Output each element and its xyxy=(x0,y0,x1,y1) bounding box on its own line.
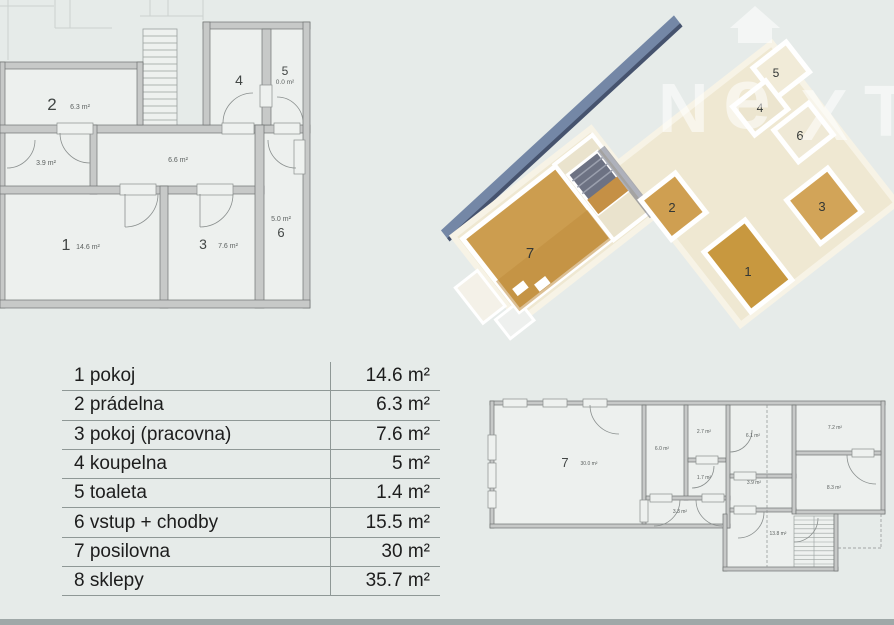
room-area: 7.6 m² xyxy=(328,424,440,446)
room2-area: 6.3 m² xyxy=(70,104,91,111)
watermark-letter-e: e xyxy=(723,51,771,147)
listing-image: 2 6.3 m² 4 5 0.0 m² 3.9 m² 6.6 m² 1 14.6… xyxy=(0,0,894,625)
table-row: 8 sklepy 35.7 m² xyxy=(62,567,440,596)
room-name: 4 koupelna xyxy=(62,453,328,475)
watermark-letter-t: T xyxy=(864,72,894,152)
bottom-edge-bar xyxy=(0,619,894,625)
room1-area: 14.6 m² xyxy=(76,244,100,251)
render3d-room5: 5 xyxy=(773,66,780,80)
room7-area: 30.0 m² xyxy=(581,461,598,467)
room-name: 2 prádelna xyxy=(62,394,328,416)
floorplan-lower: 7 30.0 m² 6.0 m² 2.7 m² 1.7 m² 6.1 m² 3.… xyxy=(484,396,894,578)
room-area: 6.3 m² xyxy=(328,394,440,416)
room-name: 6 vstup + chodby xyxy=(62,512,328,534)
render3d-room3: 3 xyxy=(818,199,825,214)
room6-area: 5.0 m² xyxy=(271,216,292,223)
cellar-area-72: 7.2 m² xyxy=(828,425,843,431)
room-area: 15.5 m² xyxy=(328,512,440,534)
room3-area: 7.6 m² xyxy=(218,243,239,250)
room-area: 35.7 m² xyxy=(328,570,440,592)
room-name: 7 posilovna xyxy=(62,541,328,563)
watermark-letter-n: N xyxy=(658,69,709,147)
floorplan-upper: 2 6.3 m² 4 5 0.0 m² 3.9 m² 6.6 m² 1 14.6… xyxy=(0,0,340,315)
cellar-area-17: 1.7 m² xyxy=(697,475,712,481)
table-row: 4 koupelna 5 m² xyxy=(62,450,440,479)
render3d-room2: 2 xyxy=(668,200,675,215)
room4-number: 4 xyxy=(235,72,243,88)
room-name: 5 toaleta xyxy=(62,482,328,504)
corridor-area-33: 3.3 m² xyxy=(673,509,688,515)
table-column-divider xyxy=(330,362,331,596)
house-icon xyxy=(730,6,780,43)
room7-number: 7 xyxy=(561,455,568,470)
room-name: 8 sklepy xyxy=(62,570,328,592)
cellar-area-61: 6.1 m² xyxy=(746,433,761,439)
watermark-letter-x: X xyxy=(800,76,848,156)
building-body xyxy=(420,0,894,362)
room-name: 3 pokoj (pracovna) xyxy=(62,424,328,446)
cellar-area-83: 8.3 m² xyxy=(827,485,842,491)
stair-hall-area-138: 13.8 m² xyxy=(770,531,787,537)
room-area: 14.6 m² xyxy=(328,365,440,387)
room5-area: 0.0 m² xyxy=(276,79,295,86)
room-area: 5 m² xyxy=(328,453,440,475)
cellar-area-60: 6.0 m² xyxy=(655,446,670,452)
render3d-room7: 7 xyxy=(526,245,534,262)
cellar-area-39: 3.9 m² xyxy=(747,480,762,486)
room-area: 30 m² xyxy=(328,541,440,563)
table-row: 3 pokoj (pracovna) 7.6 m² xyxy=(62,421,440,450)
table-row: 5 toaleta 1.4 m² xyxy=(62,479,440,508)
vestibule-area: 3.9 m² xyxy=(36,160,57,167)
table-row: 7 posilovna 30 m² xyxy=(62,538,440,567)
room6-number: 6 xyxy=(277,225,284,240)
hall-area: 6.6 m² xyxy=(168,157,189,164)
table-row: 6 vstup + chodby 15.5 m² xyxy=(62,508,440,537)
render3d-room1: 1 xyxy=(744,264,751,279)
room-name: 1 pokoj xyxy=(62,365,328,387)
render-3d: 7 2 1 3 6 4 5 N e X T xyxy=(420,0,894,362)
room3-number: 3 xyxy=(199,236,207,252)
table-row: 1 pokoj 14.6 m² xyxy=(62,362,440,391)
table-row: 2 prádelna 6.3 m² xyxy=(62,391,440,420)
room1-number: 1 xyxy=(62,237,71,254)
room2-number: 2 xyxy=(47,95,56,114)
room-legend-table: 1 pokoj 14.6 m² 2 prádelna 6.3 m² 3 poko… xyxy=(62,362,440,596)
room5-number: 5 xyxy=(282,64,289,78)
cellar-area-27: 2.7 m² xyxy=(697,429,712,435)
upper-stairs xyxy=(143,29,177,127)
room-area: 1.4 m² xyxy=(328,482,440,504)
